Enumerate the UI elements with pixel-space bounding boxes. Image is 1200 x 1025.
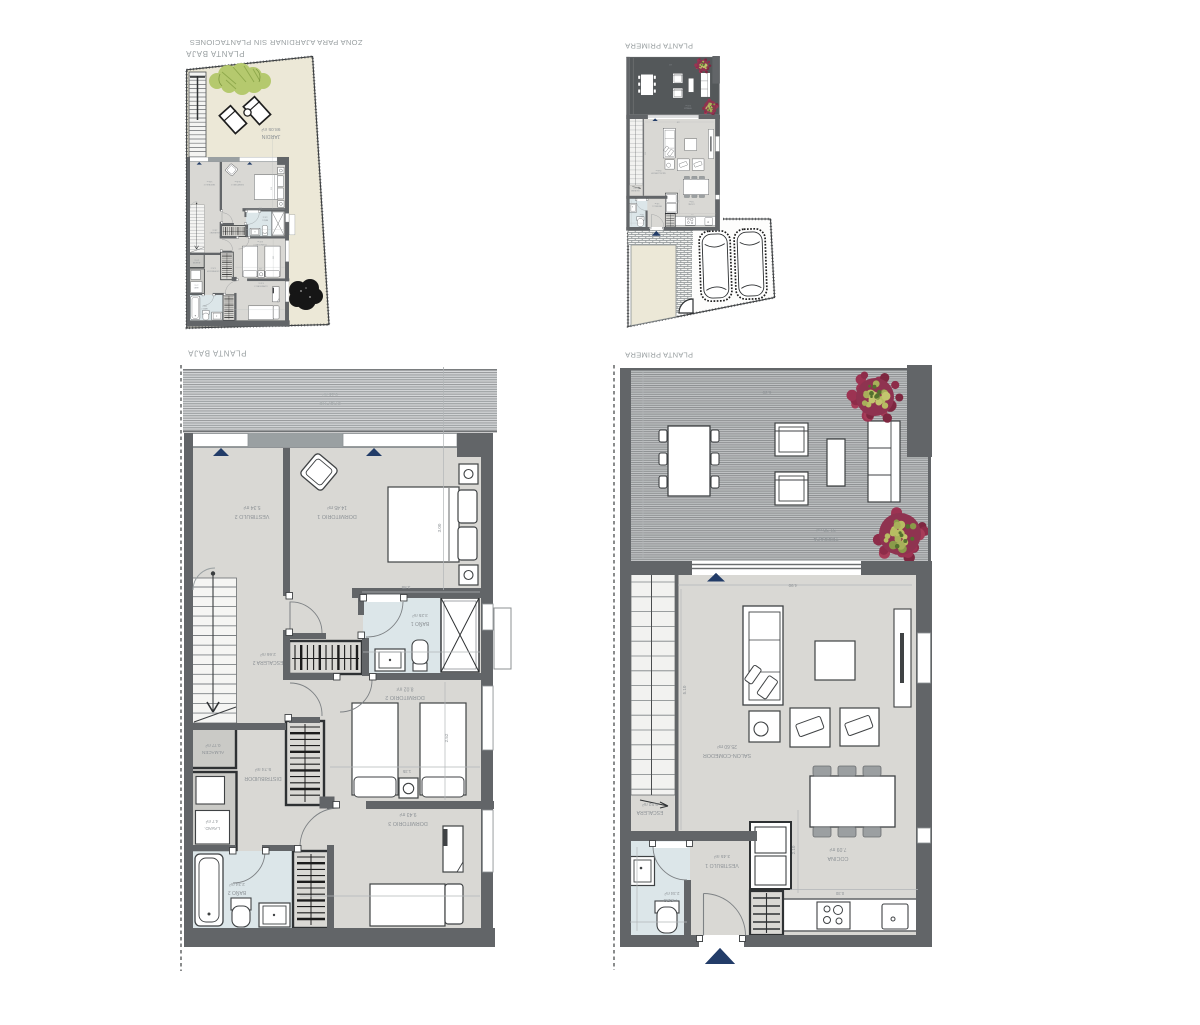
svg-text:PLANTA BAJA: PLANTA BAJA (185, 49, 244, 58)
svg-text:PLANTA PRIMERA: PLANTA PRIMERA (624, 351, 693, 360)
svg-text:9.15 m²: 9.15 m² (322, 392, 338, 397)
svg-text:PLANTA PRIMERA: PLANTA PRIMERA (624, 42, 693, 51)
svg-text:PLANTA BAJA: PLANTA BAJA (187, 349, 246, 358)
svg-text:JARDIN: JARDIN (261, 133, 280, 139)
svg-text:PORCHE: PORCHE (319, 399, 341, 405)
svg-text:98.05 m²: 98.05 m² (261, 126, 280, 132)
svg-text:ZONA PARA AJARDINAR SIN PLANT: ZONA PARA AJARDINAR SIN PLANTACIONES (190, 38, 363, 47)
